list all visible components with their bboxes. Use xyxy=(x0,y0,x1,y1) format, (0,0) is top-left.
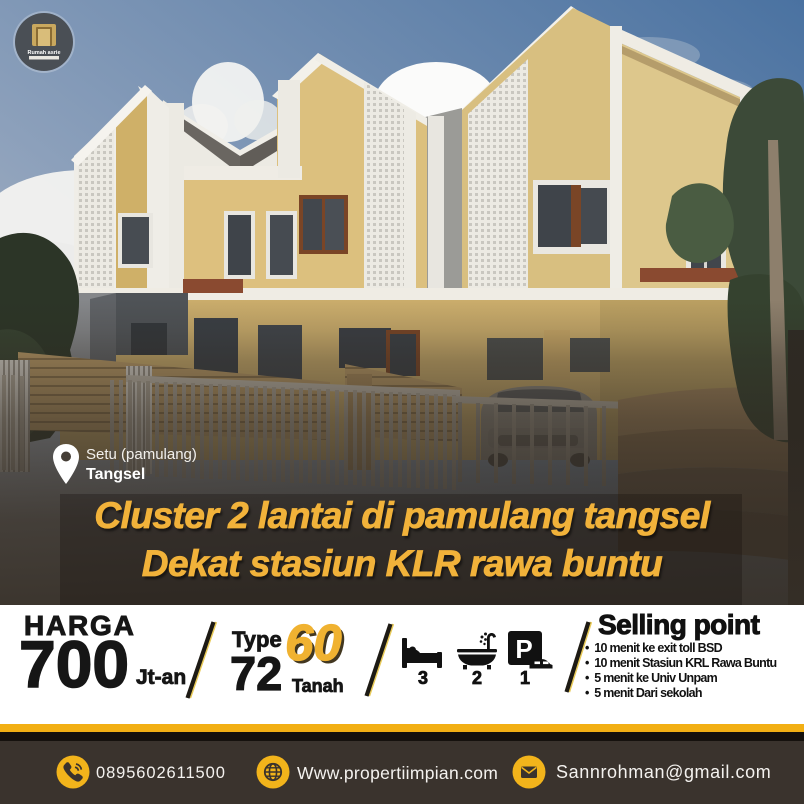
svg-text:P: P xyxy=(515,634,532,664)
svg-text:Rumah asrie: Rumah asrie xyxy=(27,50,60,56)
